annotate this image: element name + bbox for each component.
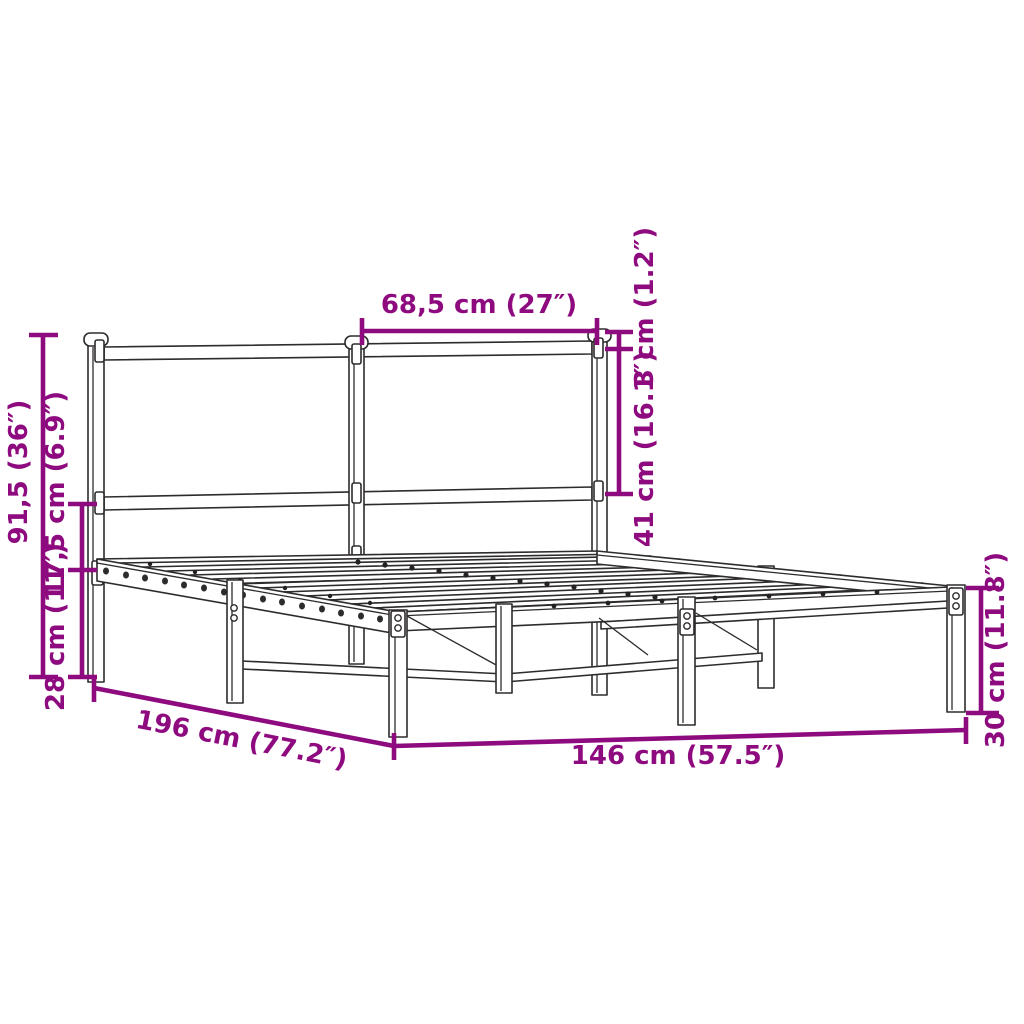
near-stretcher-bar: [505, 653, 762, 682]
dim-label-panel-height: 41 cm (16.1″): [630, 351, 660, 547]
dimension-headboard-section-width: 68,5 cm (27″): [362, 290, 597, 345]
bracket: [352, 483, 361, 503]
center-rail-leg: [496, 604, 512, 693]
bracket: [95, 340, 104, 362]
bracket: [594, 481, 603, 501]
dim-label-bed-width: 146 cm (57.5″): [571, 741, 785, 771]
product-dimension-diagram-page: { "meta": { "type": "product dimension d…: [0, 0, 1024, 1024]
dimension-bed-length: 196 cm (77.2″): [94, 675, 394, 775]
headboard-right-post: [592, 341, 607, 695]
bracket: [949, 588, 963, 615]
near-stretcher-bar: [242, 661, 505, 682]
dim-label-platform-height: 30 cm (11.8″): [981, 552, 1011, 748]
headboard: [84, 329, 611, 695]
dimension-cap-offset-and-panel-height: 3 cm (1.2″) 41 cm (16.1″): [605, 227, 660, 547]
bed-frame-dimension-diagram: 68,5 cm (27″) 3 cm (1.2″) 41 cm (16.1″) …: [0, 0, 1024, 1024]
dim-label-headboard-height: 91,5 (36″): [4, 400, 34, 545]
bracket: [352, 344, 361, 364]
dimension-platform-height: 30 cm (11.8″): [966, 552, 1011, 748]
dim-label-headboard-section-width: 68,5 cm (27″): [381, 290, 577, 320]
left-middle-leg: [227, 580, 243, 703]
headboard-lower-rail: [104, 487, 592, 510]
dim-label-under-bed-clearance: 28 cm (11″): [41, 543, 71, 711]
